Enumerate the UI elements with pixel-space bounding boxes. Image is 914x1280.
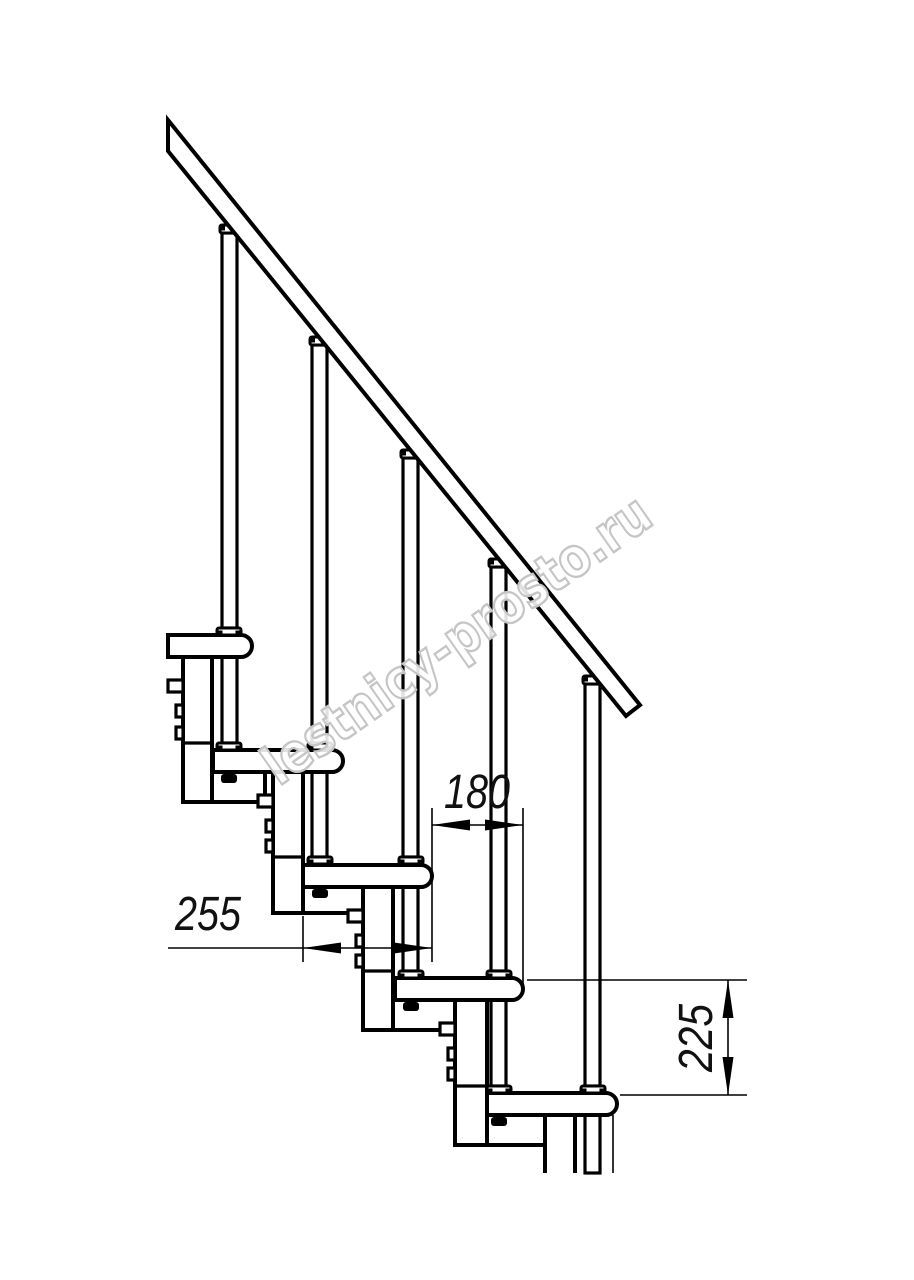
baluster-1-upper xyxy=(222,233,237,628)
step-5-flange-right xyxy=(581,1086,605,1094)
step-5-flange-left xyxy=(487,1086,511,1094)
dimension-rise-label: 225 xyxy=(670,1004,723,1073)
step-4 xyxy=(395,978,523,1000)
support-module-5 xyxy=(545,1115,575,1173)
baluster-2 xyxy=(312,345,327,857)
module-2-tab xyxy=(266,820,273,832)
drawing-canvas: 180 255 225 lestnicy-prosto.ru xyxy=(0,0,914,1280)
step-3 xyxy=(303,865,432,887)
module-1-plate xyxy=(168,680,183,692)
module-4-plate xyxy=(440,1023,455,1035)
arrowhead-left-icon xyxy=(303,943,341,954)
step-3-flange-right xyxy=(399,857,423,865)
module-4-tab xyxy=(448,1068,455,1080)
baluster-1 xyxy=(222,233,237,743)
arrowhead-down-icon xyxy=(723,1057,734,1095)
dimension-run-180: 180 xyxy=(432,766,523,987)
module-3-tab xyxy=(356,935,363,947)
arrowhead-up-icon xyxy=(723,980,734,1018)
module-3-column xyxy=(363,887,393,1030)
step-1-flange xyxy=(217,628,241,636)
module-5-column-cut xyxy=(545,1115,575,1173)
baluster-5-lower-cut xyxy=(585,1115,600,1173)
baluster-3-lower xyxy=(403,887,418,971)
module-1-tab xyxy=(176,727,183,739)
module-4-column xyxy=(455,1000,487,1145)
step-5-nut xyxy=(491,1117,507,1126)
module-3-plate xyxy=(348,910,363,922)
baluster-5-upper xyxy=(585,684,600,1086)
module-4-tab xyxy=(448,1048,455,1060)
step-3-flange-left xyxy=(308,857,332,865)
dimension-rise-225: 225 xyxy=(527,980,747,1095)
staircase-drawing-svg: 180 255 225 lestnicy-prosto.ru xyxy=(0,0,914,1280)
step-1 xyxy=(168,635,252,657)
step-2-nut xyxy=(221,774,237,783)
baluster-4-lower xyxy=(491,1000,506,1086)
module-1-tab xyxy=(176,705,183,717)
step-4-flange-left xyxy=(399,971,423,979)
step-4-nut xyxy=(403,1002,419,1011)
baluster-1-lower xyxy=(222,657,237,743)
dimension-run-label: 180 xyxy=(444,766,510,819)
step-4-flange-right xyxy=(487,971,511,979)
baluster-2-upper xyxy=(312,345,327,743)
step-2-flange-left xyxy=(217,743,241,751)
support-module-1 xyxy=(168,657,265,802)
step-5 xyxy=(487,1093,617,1115)
module-2-plate xyxy=(258,795,273,807)
dimension-depth-label: 255 xyxy=(174,888,241,941)
step-3-nut xyxy=(312,889,328,898)
module-3-tab xyxy=(356,955,363,967)
module-1-column xyxy=(183,657,212,802)
arrowhead-left-icon xyxy=(432,820,470,831)
baluster-3 xyxy=(403,458,418,971)
module-2-tab xyxy=(266,840,273,852)
baluster-2-lower xyxy=(312,772,327,857)
